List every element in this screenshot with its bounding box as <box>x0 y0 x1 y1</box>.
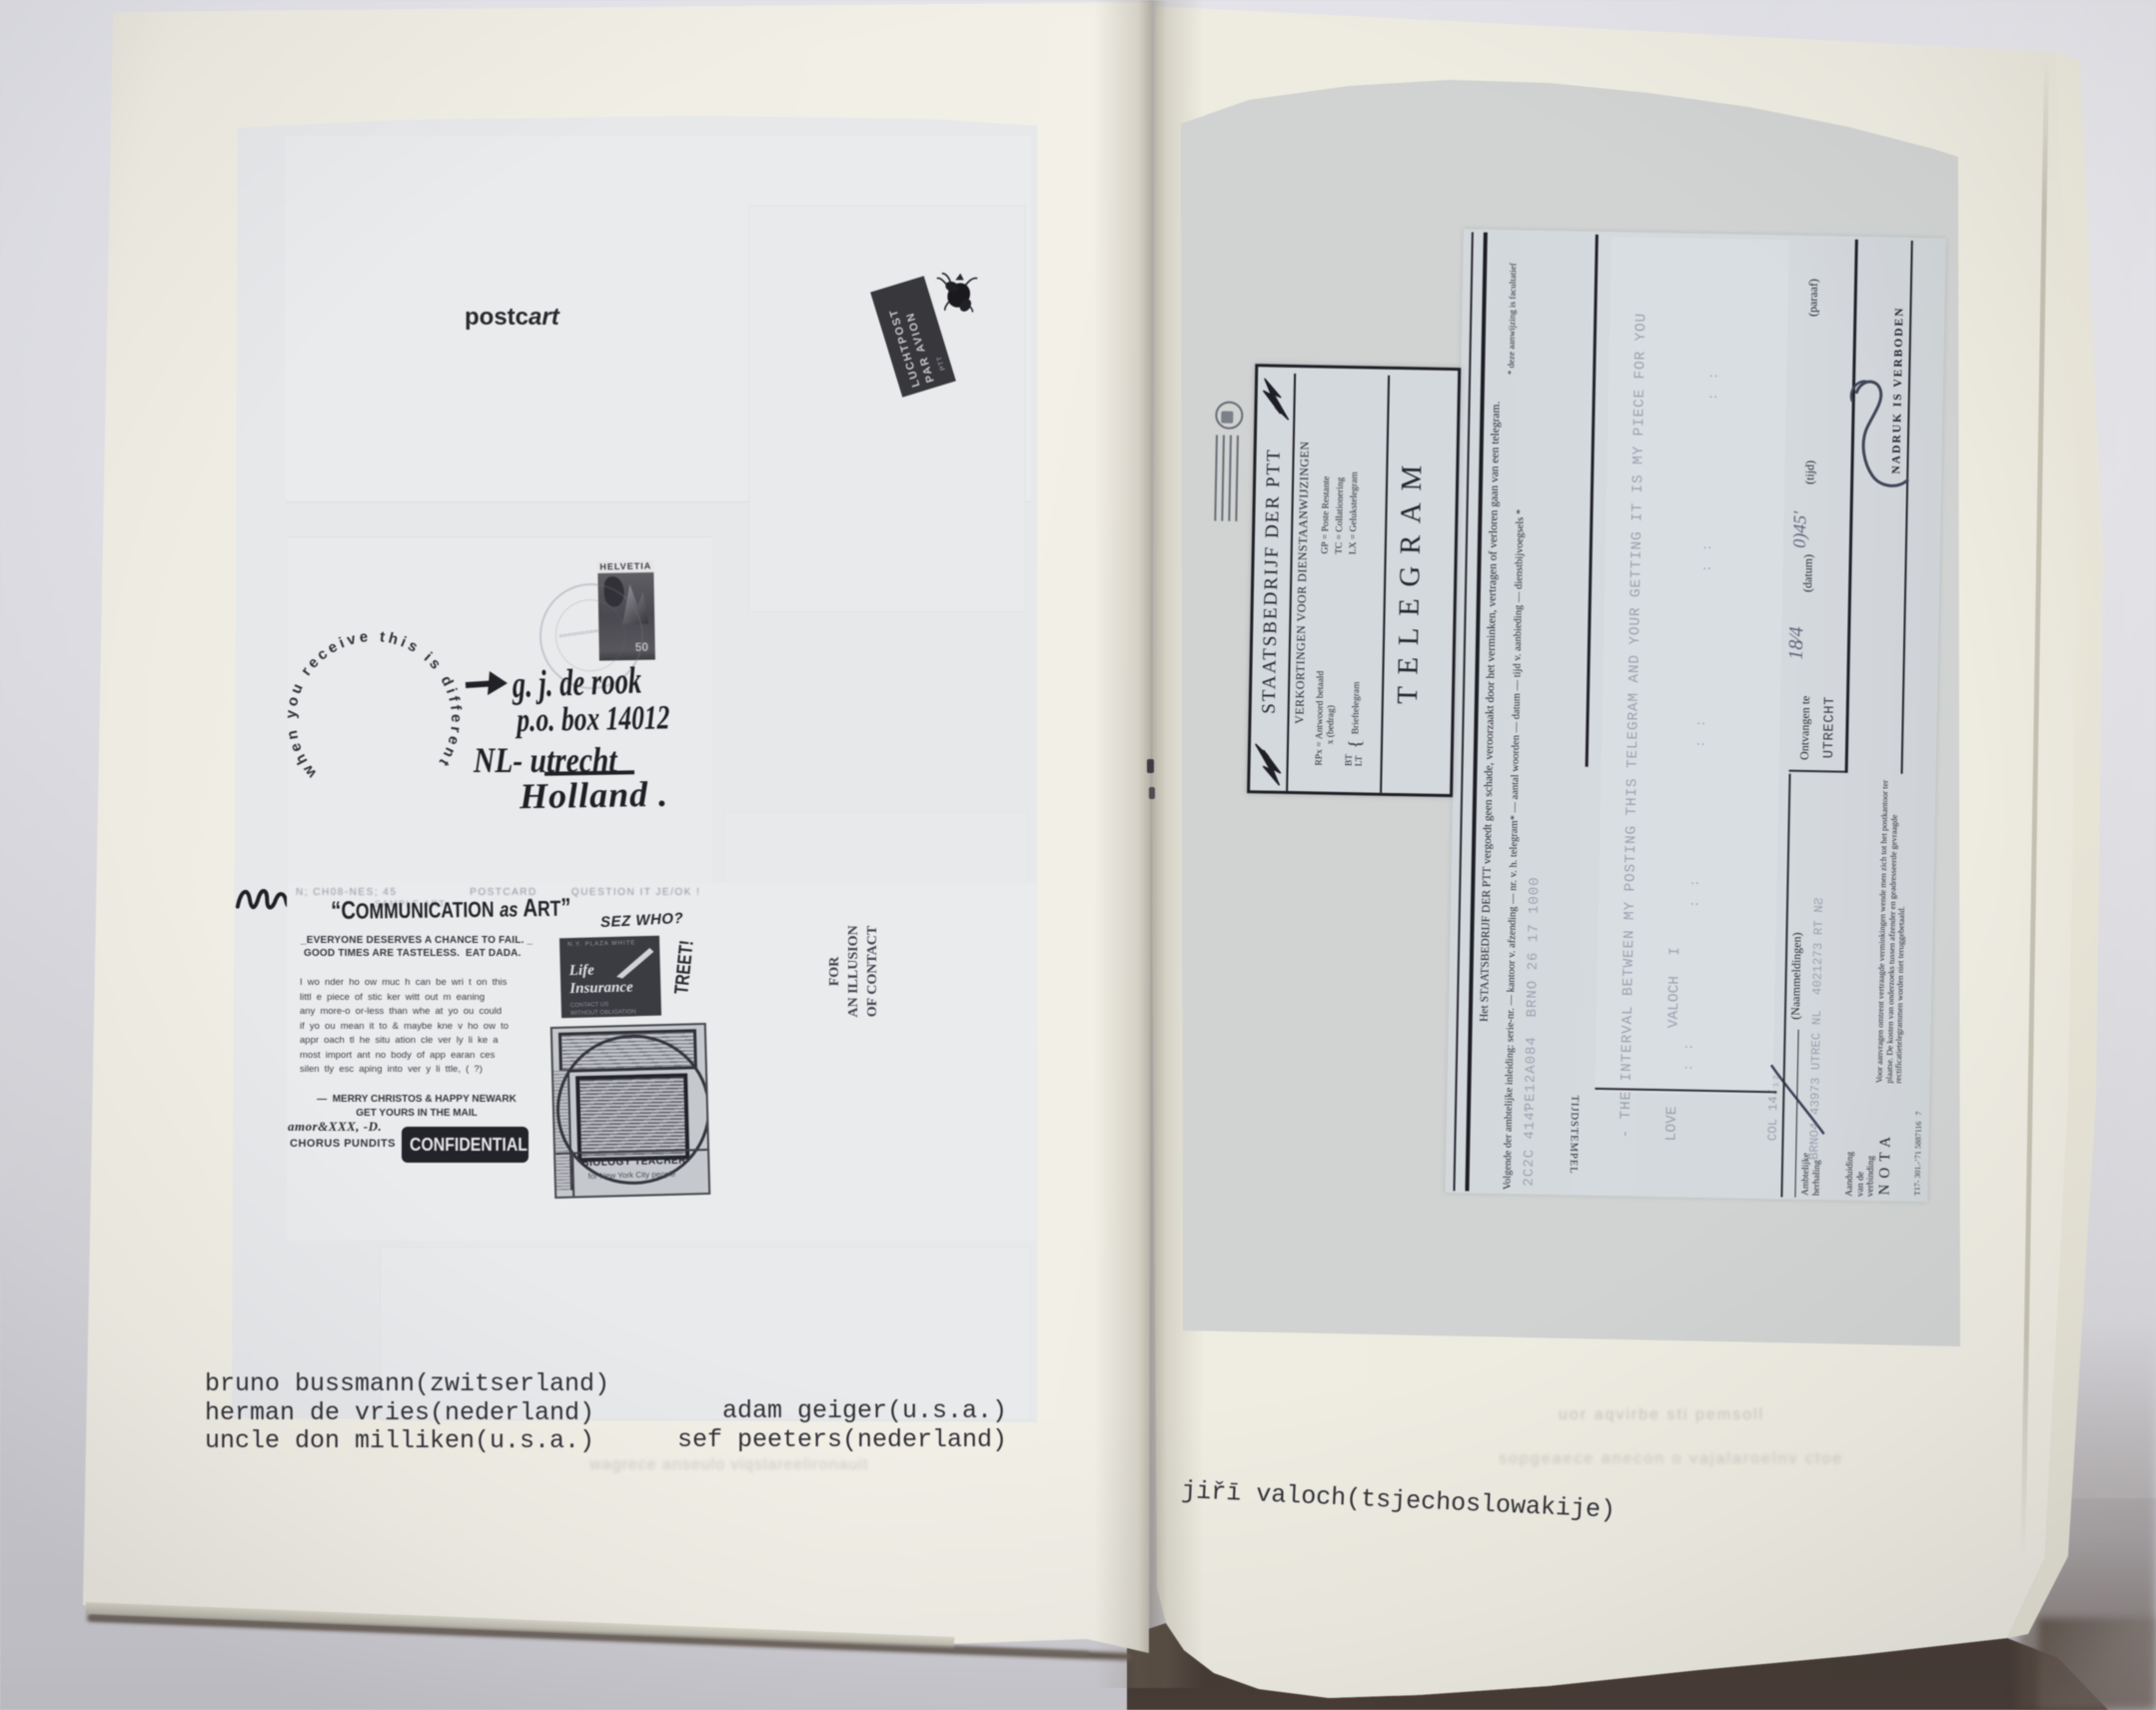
svg-text:when you receive this is diffe: when you receive this is different <box>283 628 465 782</box>
